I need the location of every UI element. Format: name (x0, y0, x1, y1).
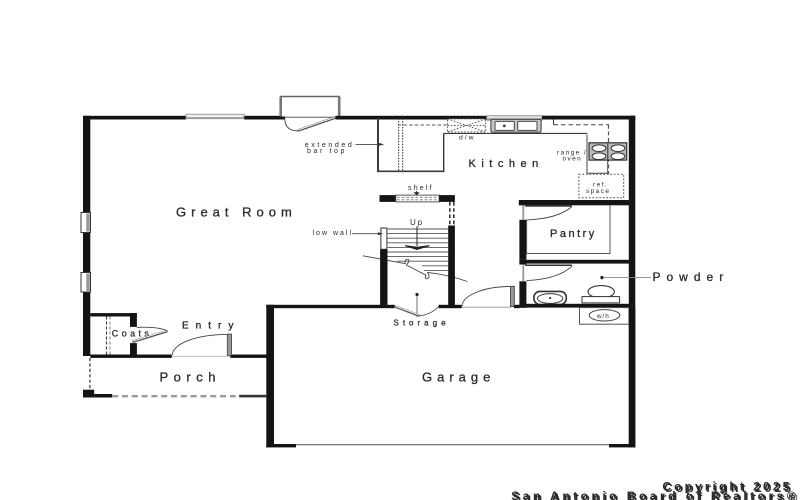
svg-text:low wall: low wall (313, 230, 354, 237)
svg-text:oven: oven (563, 156, 583, 163)
svg-text:Pantry: Pantry (550, 228, 597, 240)
svg-text:Garage: Garage (422, 369, 495, 384)
svg-text:Entry: Entry (182, 320, 240, 331)
svg-text:Powder: Powder (653, 270, 730, 284)
svg-text:bar top: bar top (307, 148, 347, 155)
svg-text:w/h: w/h (596, 313, 610, 320)
svg-text:Porch: Porch (160, 369, 221, 384)
svg-text:space: space (586, 188, 610, 195)
svg-text:Great Room: Great Room (176, 205, 297, 220)
svg-text:San Antonio Board of Realtors®: San Antonio Board of Realtors® (513, 491, 800, 500)
svg-text:Storage: Storage (394, 318, 450, 327)
svg-text:shelf: shelf (408, 185, 434, 192)
svg-text:Up: Up (410, 218, 424, 227)
svg-text:Kitchen: Kitchen (469, 158, 544, 170)
svg-text:d/w: d/w (459, 135, 476, 142)
